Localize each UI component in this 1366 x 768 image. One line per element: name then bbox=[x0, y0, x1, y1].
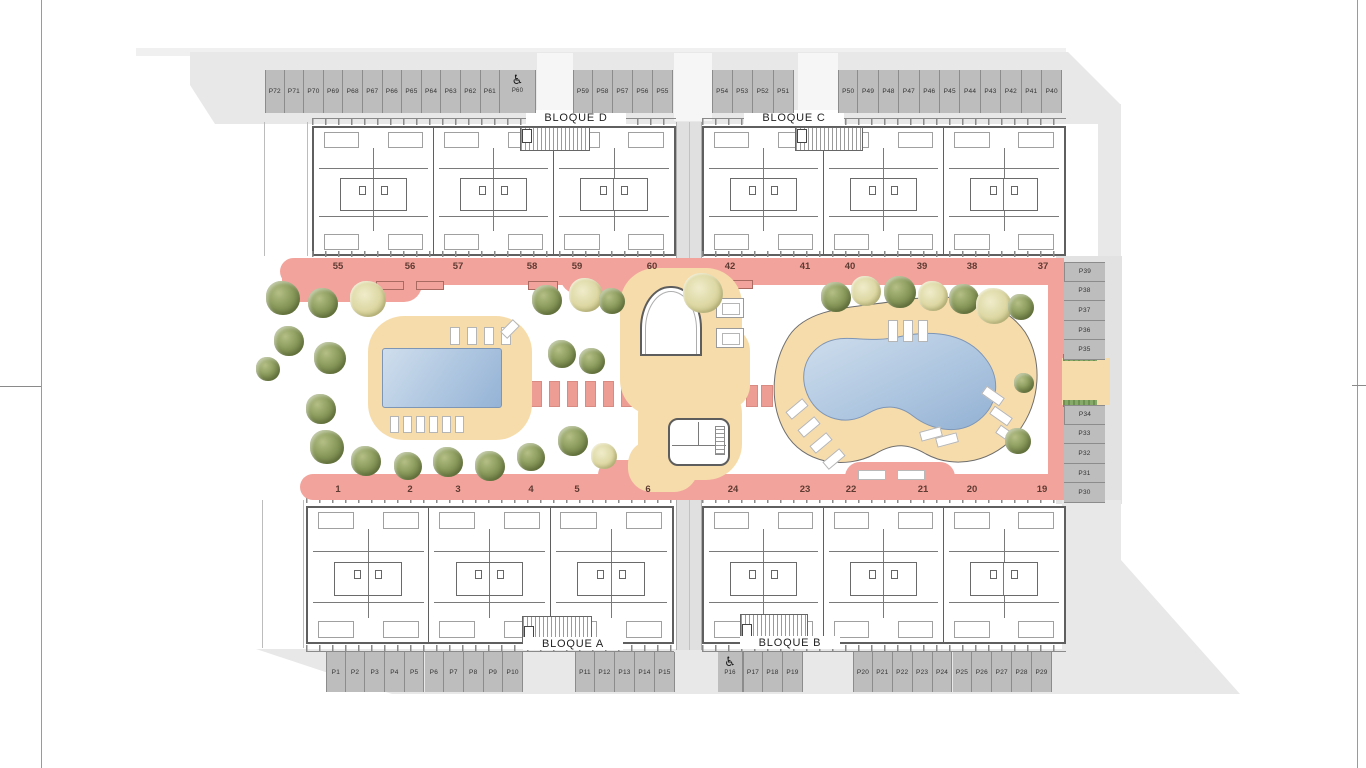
block-a-label: BLOQUE A bbox=[523, 637, 623, 650]
unit-number-19: 19 bbox=[1037, 484, 1048, 495]
parking-stall-P8: P8 bbox=[464, 652, 484, 692]
terrace bbox=[508, 234, 544, 250]
sheet-tick-left bbox=[0, 386, 41, 387]
parking-stall-P41: P41 bbox=[1022, 70, 1042, 113]
unit-number-20: 20 bbox=[967, 484, 978, 495]
apartment-block-c bbox=[702, 126, 1066, 256]
apartment-module bbox=[314, 128, 434, 254]
parking-stall-P6: P6 bbox=[425, 652, 445, 692]
terrace bbox=[714, 132, 750, 148]
terrace bbox=[439, 621, 475, 638]
terrace bbox=[388, 132, 424, 148]
unit-number-24: 24 bbox=[728, 484, 739, 495]
parking-stall-P24: P24 bbox=[933, 652, 953, 692]
tree-icon bbox=[591, 443, 617, 469]
tree-icon bbox=[350, 281, 386, 317]
unit-number-22: 22 bbox=[846, 484, 857, 495]
apartment-core bbox=[850, 178, 917, 211]
unit-number-60: 60 bbox=[647, 261, 658, 272]
boundary-line bbox=[303, 500, 304, 648]
unit-number-41: 41 bbox=[800, 261, 811, 272]
tree-icon bbox=[351, 446, 381, 476]
apartment-core bbox=[580, 178, 647, 211]
boundary-line bbox=[264, 122, 265, 256]
terrace bbox=[324, 132, 360, 148]
sun-lounger-icon bbox=[455, 416, 464, 433]
parking-stall-P27: P27 bbox=[992, 652, 1012, 692]
apartment-core bbox=[970, 178, 1037, 211]
unit-number-57: 57 bbox=[453, 261, 464, 272]
wheelchair-icon: ♿ bbox=[724, 656, 736, 669]
parking-stall-P21: P21 bbox=[873, 652, 893, 692]
terrace bbox=[1018, 234, 1054, 250]
unit-number-5: 5 bbox=[574, 484, 579, 495]
terrace bbox=[388, 234, 424, 250]
tree-icon bbox=[851, 276, 881, 306]
apartment-module bbox=[944, 508, 1064, 642]
terrace bbox=[898, 621, 934, 638]
parking-stall-P72: P72 bbox=[265, 70, 285, 113]
unit-number-37: 37 bbox=[1038, 261, 1049, 272]
terrace bbox=[714, 234, 750, 250]
sun-lounger-icon bbox=[467, 327, 477, 345]
boundary-line bbox=[307, 122, 308, 256]
terrace bbox=[626, 512, 662, 529]
unit-number-40: 40 bbox=[845, 261, 856, 272]
parking-stall-P66: P66 bbox=[383, 70, 403, 113]
tree-icon bbox=[1014, 373, 1034, 393]
stepping-stone bbox=[585, 381, 596, 407]
apartment-core bbox=[460, 178, 527, 211]
apartment-block-a bbox=[306, 506, 674, 644]
tree-icon bbox=[517, 443, 545, 471]
unit-number-6: 6 bbox=[645, 484, 650, 495]
parking-stall-P22: P22 bbox=[893, 652, 913, 692]
parking-stall-P32: P32 bbox=[1064, 444, 1105, 464]
terrace-ticks bbox=[702, 251, 1066, 257]
terrace bbox=[628, 234, 664, 250]
tree-icon bbox=[683, 273, 723, 313]
parking-stall-P12: P12 bbox=[595, 652, 615, 692]
parking-stall-P26: P26 bbox=[972, 652, 992, 692]
parking-stall-P20: P20 bbox=[853, 652, 873, 692]
terrace-ticks bbox=[312, 251, 676, 257]
parking-stall-P45: P45 bbox=[940, 70, 960, 113]
parking-stall-P57: P57 bbox=[613, 70, 633, 113]
parking-stall-P56: P56 bbox=[633, 70, 653, 113]
terrace bbox=[444, 132, 480, 148]
tree-icon bbox=[949, 284, 979, 314]
parking-stall-P49: P49 bbox=[858, 70, 878, 113]
parking-stall-P15: P15 bbox=[655, 652, 675, 692]
parking-stall-P43: P43 bbox=[981, 70, 1001, 113]
terrace bbox=[1018, 132, 1054, 148]
parking-stall-P58: P58 bbox=[593, 70, 613, 113]
parking-stall-label: P60 bbox=[512, 88, 523, 94]
site-plan: BLOQUE D BLOQUE C BLOQUE A BLOQUE B bbox=[0, 0, 1366, 768]
terrace bbox=[714, 512, 750, 529]
boundary-line bbox=[262, 500, 263, 648]
apartment-core bbox=[730, 178, 797, 211]
parking-stall-P13: P13 bbox=[615, 652, 635, 692]
terrace bbox=[439, 512, 475, 529]
stepping-stone bbox=[567, 381, 578, 407]
terrace bbox=[564, 234, 600, 250]
driveway-gap bbox=[674, 53, 712, 121]
parking-stall-P4: P4 bbox=[385, 652, 405, 692]
parking-stall-P62: P62 bbox=[461, 70, 481, 113]
terrace bbox=[898, 512, 934, 529]
sun-lounger-icon bbox=[403, 416, 412, 433]
parking-stall-P61: P61 bbox=[481, 70, 501, 113]
parking-stall-P25: P25 bbox=[953, 652, 973, 692]
parking-stall-P35: P35 bbox=[1064, 340, 1105, 360]
parking-stall-P40: P40 bbox=[1042, 70, 1062, 113]
parking-stall-P71: P71 bbox=[285, 70, 305, 113]
sun-lounger-icon bbox=[918, 320, 928, 342]
unit-number-23: 23 bbox=[800, 484, 811, 495]
parking-stall-P47: P47 bbox=[899, 70, 919, 113]
apartment-module bbox=[308, 508, 429, 642]
parking-stall-P51: P51 bbox=[774, 70, 795, 113]
terrace bbox=[954, 234, 990, 250]
parking-stall-P70: P70 bbox=[304, 70, 324, 113]
parking-stall-P60: ♿P60 bbox=[500, 70, 536, 113]
parking-stall-P33: P33 bbox=[1064, 425, 1105, 445]
unit-number-55: 55 bbox=[333, 261, 344, 272]
terrace bbox=[954, 621, 990, 638]
terrace bbox=[318, 512, 354, 529]
terrace bbox=[560, 512, 596, 529]
parking-stall-P48: P48 bbox=[879, 70, 899, 113]
tree-icon bbox=[256, 357, 280, 381]
parking-stall-P64: P64 bbox=[422, 70, 442, 113]
elevator bbox=[797, 129, 807, 143]
sun-lounger-icon bbox=[390, 416, 399, 433]
apartment-core bbox=[334, 562, 401, 597]
tree-icon bbox=[1005, 428, 1031, 454]
tree-icon bbox=[394, 452, 422, 480]
parking-stall-P17: P17 bbox=[743, 652, 763, 692]
tree-icon bbox=[433, 447, 463, 477]
apartment-core bbox=[730, 562, 797, 597]
parking-stall-P7: P7 bbox=[444, 652, 464, 692]
pool-left bbox=[382, 348, 502, 408]
parking-stall-P39: P39 bbox=[1064, 262, 1105, 282]
apartment-core bbox=[850, 562, 917, 597]
parking-stall-P52: P52 bbox=[753, 70, 774, 113]
terrace bbox=[778, 512, 814, 529]
parking-stall-P10: P10 bbox=[503, 652, 523, 692]
tree-icon bbox=[306, 394, 336, 424]
parking-stall-label: P16 bbox=[724, 670, 735, 676]
parking-stall-P53: P53 bbox=[733, 70, 754, 113]
parking-stall-P16: ♿P16 bbox=[718, 652, 743, 692]
stepping-stone bbox=[549, 381, 560, 407]
sun-lounger-icon bbox=[442, 416, 451, 433]
terrace bbox=[834, 512, 870, 529]
apartment-core bbox=[577, 562, 645, 597]
parking-stall-P14: P14 bbox=[635, 652, 655, 692]
parking-stall-P36: P36 bbox=[1064, 321, 1105, 341]
parking-stall-P50: P50 bbox=[838, 70, 858, 113]
unit-number-59: 59 bbox=[572, 261, 583, 272]
apartment-module bbox=[944, 128, 1064, 254]
tree-icon bbox=[308, 288, 338, 318]
tree-icon bbox=[314, 342, 346, 374]
terrace bbox=[383, 621, 419, 638]
terrace bbox=[898, 132, 934, 148]
parking-stall-P63: P63 bbox=[441, 70, 461, 113]
terrace bbox=[626, 621, 662, 638]
parking-stall-P19: P19 bbox=[783, 652, 803, 692]
parking-stall-P46: P46 bbox=[920, 70, 940, 113]
entrance-east bbox=[1062, 358, 1110, 405]
apartment-core bbox=[970, 562, 1037, 597]
parking-stall-P1: P1 bbox=[326, 652, 346, 692]
sheet-frame-left bbox=[41, 0, 42, 768]
parking-stall-P42: P42 bbox=[1001, 70, 1021, 113]
terrace bbox=[504, 512, 540, 529]
terrace bbox=[778, 234, 814, 250]
apartment-block-d bbox=[312, 126, 676, 256]
tree-icon bbox=[918, 281, 948, 311]
parking-stall-P67: P67 bbox=[363, 70, 383, 113]
parking-stall-P31: P31 bbox=[1064, 464, 1105, 484]
stair-hatch bbox=[715, 426, 724, 455]
parking-stall-P11: P11 bbox=[575, 652, 595, 692]
parking-stall-P30: P30 bbox=[1064, 483, 1105, 503]
tree-icon bbox=[266, 281, 300, 315]
tree-icon bbox=[548, 340, 576, 368]
corridor-bottom bbox=[676, 500, 702, 650]
corridor-top bbox=[676, 122, 702, 258]
wheelchair-icon: ♿ bbox=[512, 74, 524, 87]
sheet-tick-right bbox=[1352, 385, 1366, 386]
parking-stall-P69: P69 bbox=[324, 70, 344, 113]
terrace bbox=[318, 621, 354, 638]
sheet-frame-right bbox=[1357, 0, 1358, 768]
sun-lounger-icon bbox=[903, 320, 913, 342]
unit-number-58: 58 bbox=[527, 261, 538, 272]
parking-stall-P29: P29 bbox=[1032, 652, 1052, 692]
tree-icon bbox=[599, 288, 625, 314]
tree-icon bbox=[976, 288, 1012, 324]
tree-icon bbox=[310, 430, 344, 464]
parking-stall-P55: P55 bbox=[653, 70, 673, 113]
terrace bbox=[1018, 621, 1054, 638]
unit-number-2: 2 bbox=[407, 484, 412, 495]
terrace bbox=[898, 234, 934, 250]
parking-stall-P37: P37 bbox=[1064, 301, 1105, 321]
bench-marker bbox=[416, 281, 444, 290]
sun-lounger-icon bbox=[888, 320, 898, 342]
apartment-module bbox=[824, 508, 944, 642]
sun-lounger-icon bbox=[484, 327, 494, 345]
unit-number-42: 42 bbox=[725, 261, 736, 272]
unit-number-38: 38 bbox=[967, 261, 978, 272]
parking-stall-P44: P44 bbox=[960, 70, 980, 113]
parking-stall-P2: P2 bbox=[346, 652, 366, 692]
parking-stall-P68: P68 bbox=[343, 70, 363, 113]
tree-icon bbox=[1008, 294, 1034, 320]
picnic-table bbox=[716, 328, 744, 348]
parking-stall-P59: P59 bbox=[573, 70, 593, 113]
tree-icon bbox=[569, 278, 603, 312]
tree-icon bbox=[274, 326, 304, 356]
unit-number-3: 3 bbox=[455, 484, 460, 495]
terrace bbox=[834, 234, 870, 250]
parking-stall-P65: P65 bbox=[402, 70, 422, 113]
parking-stall-P18: P18 bbox=[763, 652, 783, 692]
parking-stall-P5: P5 bbox=[405, 652, 425, 692]
apartment-core bbox=[456, 562, 523, 597]
apartment-core bbox=[340, 178, 407, 211]
terrace bbox=[1018, 512, 1054, 529]
sun-lounger-icon bbox=[416, 416, 425, 433]
parking-stall-P38: P38 bbox=[1064, 282, 1105, 302]
terrace bbox=[324, 234, 360, 250]
parking-stall-P9: P9 bbox=[484, 652, 504, 692]
site-right-band-upper bbox=[1098, 104, 1121, 260]
tree-icon bbox=[884, 276, 916, 308]
terrace bbox=[954, 512, 990, 529]
tree-icon bbox=[558, 426, 588, 456]
terrace bbox=[954, 132, 990, 148]
unit-number-56: 56 bbox=[405, 261, 416, 272]
pool-house bbox=[668, 418, 730, 466]
stepping-stone bbox=[531, 381, 542, 407]
tree-icon bbox=[532, 285, 562, 315]
stepping-stone bbox=[603, 381, 614, 407]
tree-icon bbox=[821, 282, 851, 312]
unit-number-21: 21 bbox=[918, 484, 929, 495]
parking-stall-P23: P23 bbox=[913, 652, 933, 692]
parking-stall-P34: P34 bbox=[1064, 405, 1105, 425]
parking-stall-P54: P54 bbox=[712, 70, 733, 113]
block-b-label: BLOQUE B bbox=[740, 636, 840, 649]
sun-lounger-icon bbox=[429, 416, 438, 433]
unit-number-4: 4 bbox=[528, 484, 533, 495]
terrace bbox=[444, 234, 480, 250]
terrace bbox=[383, 512, 419, 529]
terrace bbox=[628, 132, 664, 148]
unit-number-39: 39 bbox=[917, 261, 928, 272]
tree-icon bbox=[579, 348, 605, 374]
parking-stall-P3: P3 bbox=[365, 652, 385, 692]
unit-number-1: 1 bbox=[335, 484, 340, 495]
parking-stall-P28: P28 bbox=[1012, 652, 1032, 692]
elevator bbox=[522, 129, 532, 143]
sun-lounger-icon bbox=[450, 327, 460, 345]
tree-icon bbox=[475, 451, 505, 481]
